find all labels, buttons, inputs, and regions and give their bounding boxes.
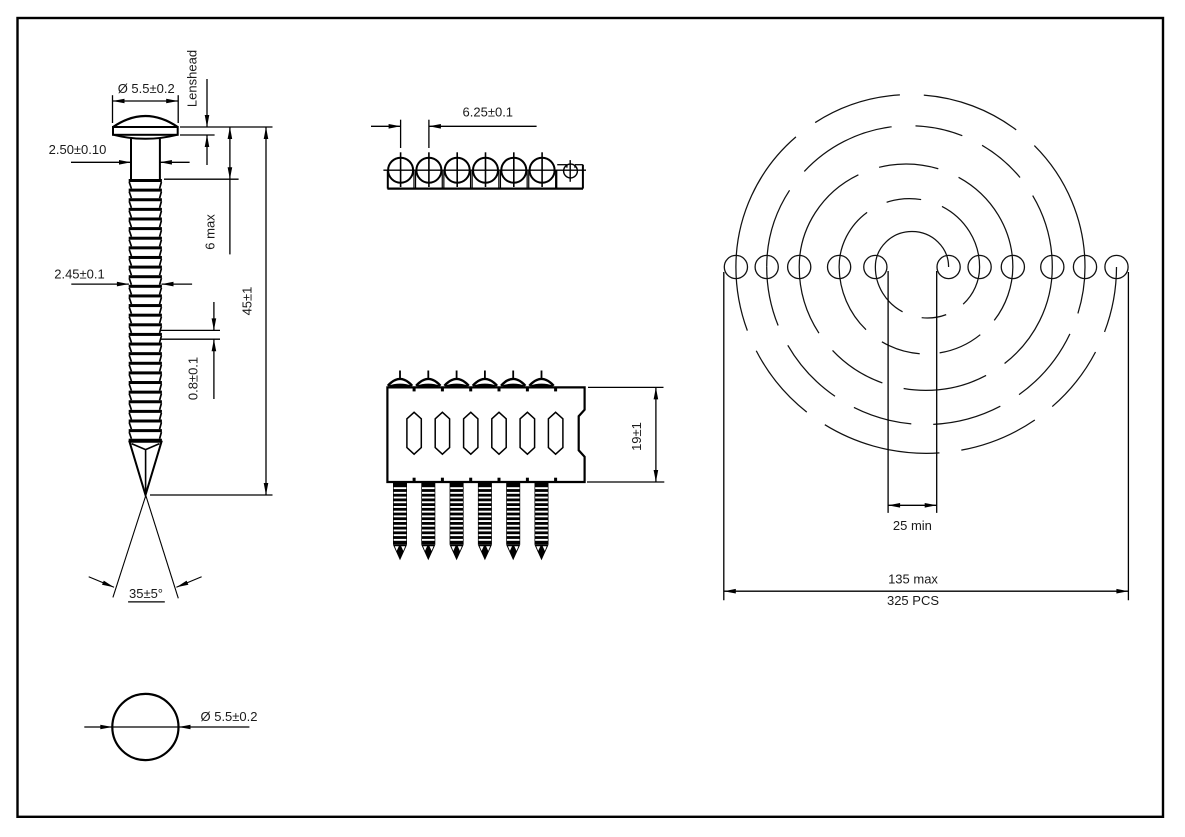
svg-text:19±1: 19±1 — [629, 422, 644, 451]
svg-text:25 min: 25 min — [893, 518, 932, 533]
svg-text:45±1: 45±1 — [240, 287, 255, 316]
svg-text:35±5°: 35±5° — [129, 586, 163, 601]
svg-text:2.50±0.10: 2.50±0.10 — [49, 142, 107, 157]
svg-text:325 PCS: 325 PCS — [887, 593, 939, 608]
svg-text:0.8±0.1: 0.8±0.1 — [185, 357, 200, 400]
svg-text:6 max: 6 max — [203, 214, 218, 250]
svg-text:Ø 5.5±0.2: Ø 5.5±0.2 — [118, 81, 175, 96]
svg-text:6.25±0.1: 6.25±0.1 — [463, 105, 514, 120]
svg-text:Ø 5.5±0.2: Ø 5.5±0.2 — [200, 709, 257, 724]
svg-text:Lenshead: Lenshead — [185, 50, 200, 107]
svg-text:135 max: 135 max — [888, 572, 938, 587]
svg-text:2.45±0.1: 2.45±0.1 — [54, 267, 105, 282]
